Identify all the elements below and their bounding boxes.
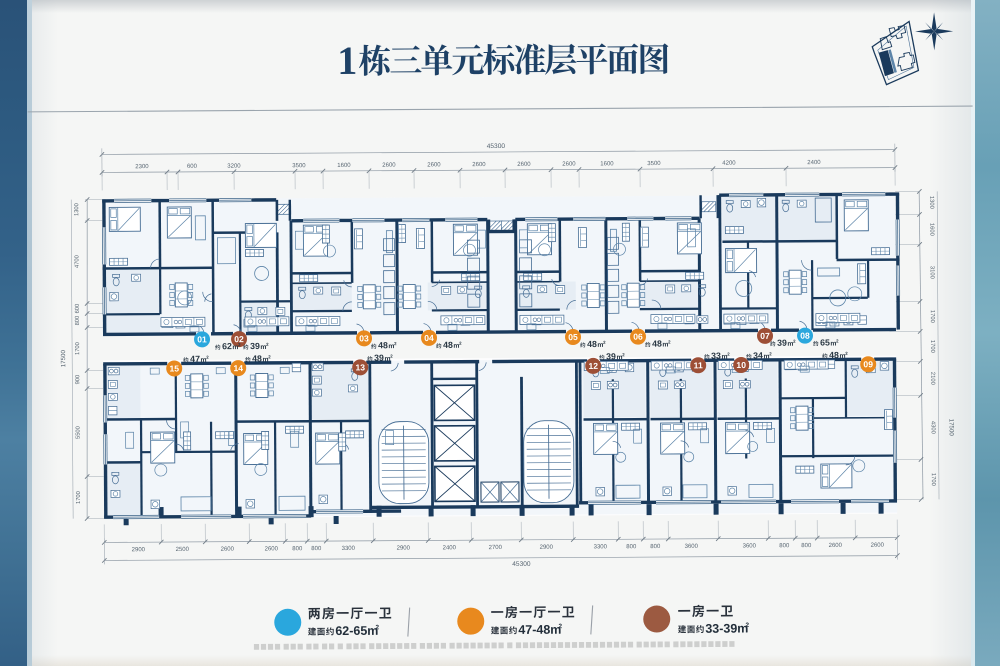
svg-text:2600: 2600: [265, 546, 279, 552]
svg-text:800: 800: [311, 546, 322, 552]
svg-text:1600: 1600: [600, 161, 614, 167]
svg-text:06: 06: [633, 332, 643, 342]
svg-text:2600: 2600: [871, 543, 885, 549]
svg-text:07: 07: [760, 331, 770, 341]
svg-text:2: 2: [206, 355, 209, 360]
svg-text:2900: 2900: [540, 545, 554, 551]
svg-text:47: 47: [190, 354, 200, 364]
svg-text:65: 65: [820, 337, 830, 347]
svg-text:2: 2: [459, 341, 462, 346]
svg-text:1700: 1700: [75, 342, 81, 355]
svg-text:5500: 5500: [76, 426, 82, 439]
svg-text:2: 2: [375, 624, 379, 631]
svg-text:39: 39: [777, 338, 787, 348]
svg-text:33: 33: [711, 351, 721, 361]
svg-text:2: 2: [266, 342, 269, 347]
svg-text:800: 800: [650, 544, 661, 550]
svg-text:2100: 2100: [929, 372, 935, 385]
svg-text:2300: 2300: [135, 164, 149, 170]
svg-text:1: 1: [337, 38, 357, 83]
svg-text:800: 800: [801, 543, 812, 549]
svg-text:2600: 2600: [382, 163, 396, 169]
svg-text:39: 39: [606, 351, 616, 361]
svg-text:2900: 2900: [397, 546, 411, 552]
svg-text:33-39m: 33-39m: [705, 621, 748, 635]
svg-text:2: 2: [745, 622, 749, 629]
svg-text:62: 62: [222, 341, 232, 351]
svg-text:2900: 2900: [132, 547, 146, 553]
svg-text:45300: 45300: [512, 561, 531, 568]
svg-text:600: 600: [75, 304, 81, 314]
svg-text:2500: 2500: [176, 547, 190, 553]
svg-text:2: 2: [845, 351, 848, 356]
svg-text:08: 08: [800, 331, 810, 341]
svg-text:2: 2: [394, 341, 397, 346]
svg-text:14: 14: [233, 363, 243, 373]
svg-text:2: 2: [769, 351, 772, 356]
svg-text:2600: 2600: [829, 543, 843, 549]
svg-text:3500: 3500: [647, 161, 661, 167]
svg-text:1300: 1300: [928, 196, 934, 209]
svg-text:10: 10: [736, 360, 746, 370]
svg-text:04: 04: [424, 333, 434, 343]
svg-text:2: 2: [622, 352, 625, 357]
svg-text:800: 800: [626, 544, 637, 550]
svg-text:4200: 4200: [722, 161, 736, 167]
svg-text:3200: 3200: [227, 164, 241, 170]
svg-text:1600: 1600: [928, 223, 934, 236]
svg-text:800: 800: [292, 546, 303, 552]
svg-text:2400: 2400: [807, 160, 821, 166]
svg-text:48: 48: [587, 339, 597, 349]
svg-text:03: 03: [359, 333, 369, 343]
svg-text:2: 2: [727, 352, 730, 357]
svg-text:1700: 1700: [76, 491, 82, 504]
svg-text:48: 48: [252, 353, 262, 363]
svg-text:2600: 2600: [221, 547, 235, 553]
svg-text:2: 2: [390, 354, 393, 359]
svg-text:1600: 1600: [337, 163, 351, 169]
svg-text:2600: 2600: [562, 162, 576, 168]
svg-text:45300: 45300: [487, 143, 506, 150]
svg-text:13: 13: [355, 362, 365, 372]
svg-text:17500: 17500: [948, 419, 955, 437]
svg-text:2: 2: [836, 338, 839, 343]
svg-text:2600: 2600: [472, 162, 486, 168]
svg-text:09: 09: [863, 359, 873, 369]
svg-text:01: 01: [197, 334, 207, 344]
svg-text:4700: 4700: [75, 255, 81, 268]
svg-text:48: 48: [652, 339, 662, 349]
svg-text:800: 800: [75, 316, 81, 326]
svg-text:2: 2: [268, 354, 271, 359]
svg-text:1300: 1300: [74, 203, 80, 216]
svg-text:1700: 1700: [930, 473, 936, 486]
svg-text:2700: 2700: [489, 545, 503, 551]
svg-text:600: 600: [187, 164, 198, 170]
svg-text:11: 11: [694, 360, 703, 370]
svg-text:39: 39: [250, 341, 260, 351]
svg-text:3600: 3600: [743, 543, 757, 549]
svg-text:34: 34: [753, 350, 763, 360]
svg-text:2: 2: [603, 340, 606, 345]
svg-text:17500: 17500: [60, 349, 67, 367]
svg-text:2: 2: [558, 623, 562, 630]
svg-text:3300: 3300: [594, 544, 608, 550]
svg-text:3600: 3600: [685, 544, 699, 550]
svg-text:2400: 2400: [443, 545, 457, 551]
svg-text:48: 48: [378, 340, 388, 350]
svg-text:1700: 1700: [929, 340, 935, 353]
svg-text:1700: 1700: [929, 310, 935, 323]
svg-text:15: 15: [169, 363, 179, 373]
svg-text:47-48m: 47-48m: [518, 623, 561, 637]
svg-text:800: 800: [779, 543, 790, 549]
svg-text:4300: 4300: [930, 421, 936, 434]
svg-text:05: 05: [568, 332, 578, 342]
svg-text:3100: 3100: [929, 266, 935, 279]
svg-text:48: 48: [829, 350, 839, 360]
svg-text:2: 2: [668, 339, 671, 344]
svg-text:2: 2: [793, 339, 796, 344]
svg-text:2600: 2600: [517, 162, 531, 168]
svg-text:900: 900: [75, 375, 81, 385]
svg-text:12: 12: [588, 361, 598, 371]
svg-text:3500: 3500: [292, 163, 306, 169]
svg-text:3300: 3300: [342, 546, 356, 552]
svg-text:62-65m: 62-65m: [335, 624, 378, 638]
svg-text:39: 39: [374, 353, 384, 363]
svg-text:48: 48: [443, 340, 453, 350]
svg-text:2600: 2600: [427, 162, 441, 168]
